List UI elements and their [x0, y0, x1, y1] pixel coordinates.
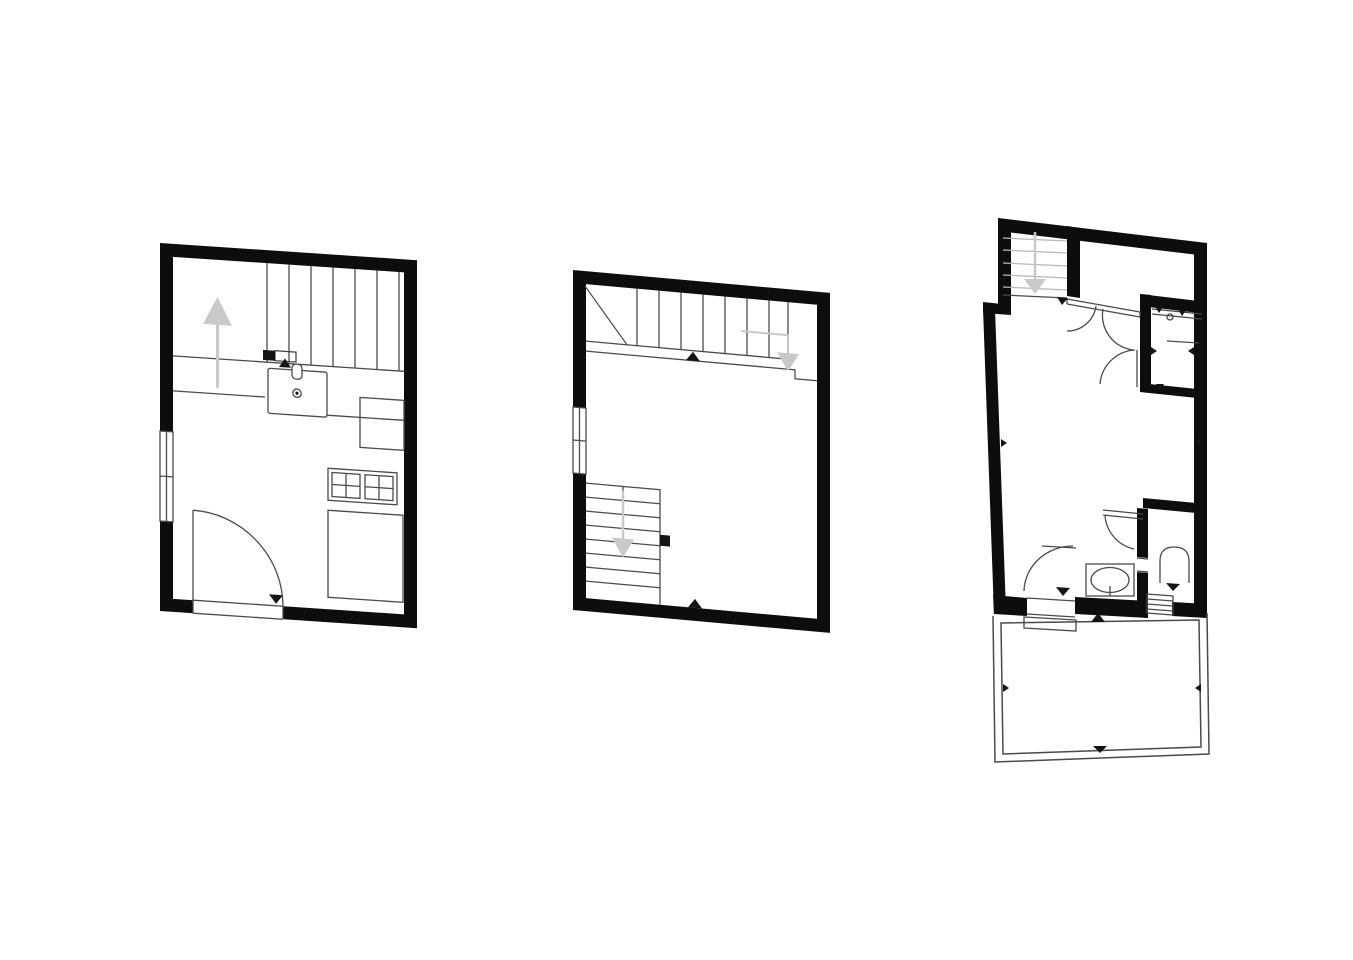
bottom-wall-marker [688, 598, 702, 608]
door-opening [193, 599, 283, 620]
storage-tick-right [1188, 347, 1194, 355]
stair-arrow-head [1024, 279, 1046, 294]
sink-faucet [292, 364, 302, 380]
wc-left-wall-upper [1137, 508, 1148, 558]
upper-arrow-head [777, 352, 799, 372]
storage-tick-left [1151, 347, 1157, 355]
top-wall [998, 218, 1207, 256]
stair-divider-wall [1067, 226, 1080, 298]
terrace-tick-right [1195, 684, 1201, 692]
door-marker-down [269, 594, 283, 604]
terrace-tick-left [1003, 684, 1009, 692]
left-partition-line [173, 391, 265, 397]
exterior-steps [1147, 594, 1173, 615]
toilet [1160, 547, 1189, 583]
left-wall-lower [983, 308, 1006, 614]
counter-line [327, 415, 404, 420]
north-arrow-head [203, 296, 232, 326]
floor-plan-3 [983, 218, 1209, 762]
north-arrow [203, 296, 232, 389]
sink-drain-dot [295, 391, 298, 394]
hall-opening-lines [1067, 299, 1140, 317]
stove-burners-left [332, 473, 360, 499]
floor-plan-2 [572, 270, 831, 633]
double-door-left-arc [1067, 306, 1096, 331]
kitchen-counter [360, 397, 404, 450]
wc-marker [1166, 583, 1180, 591]
north-arrow-stem [216, 325, 219, 388]
room-tick-left [1001, 439, 1007, 447]
wc-door-gap-lines [1137, 558, 1148, 572]
floor-plans-canvas [0, 0, 1353, 960]
wall-stub-square [660, 535, 670, 547]
bathroom-door-arc [1105, 515, 1134, 549]
terrace-door-marker [1056, 587, 1070, 596]
plan2-outer-walls [573, 270, 830, 633]
upper-arrow-stem [741, 331, 788, 353]
hall-door-arc [1100, 350, 1135, 384]
terrace-inner-edge [1001, 620, 1201, 754]
stair-break-line [585, 286, 627, 345]
bottom-wall-right [1172, 602, 1207, 618]
entry-door-swing-arc [193, 510, 283, 606]
terrace-outer-edge [993, 613, 1209, 762]
terrace-tick-bottom [1093, 746, 1107, 753]
base-cabinet [328, 510, 403, 602]
terrace-door-arc [1024, 546, 1073, 591]
stair-down-arrow [1024, 232, 1046, 294]
terrace-door-thresholds [1027, 598, 1075, 617]
stove-outline [328, 468, 397, 505]
storage-fixture-circle [1167, 314, 1173, 320]
bottom-wall-left [993, 595, 1027, 616]
stair-edge-line [586, 341, 788, 359]
floor-plan-1 [159, 243, 418, 629]
door-step [1024, 617, 1076, 631]
floor-plans-page [0, 0, 1353, 960]
stair-marker-up [686, 351, 700, 361]
wall-stub-square [263, 350, 275, 361]
stair-treads-up [267, 263, 399, 371]
stove-burners-right [365, 475, 393, 501]
storage-room-left-wall [1140, 294, 1151, 388]
